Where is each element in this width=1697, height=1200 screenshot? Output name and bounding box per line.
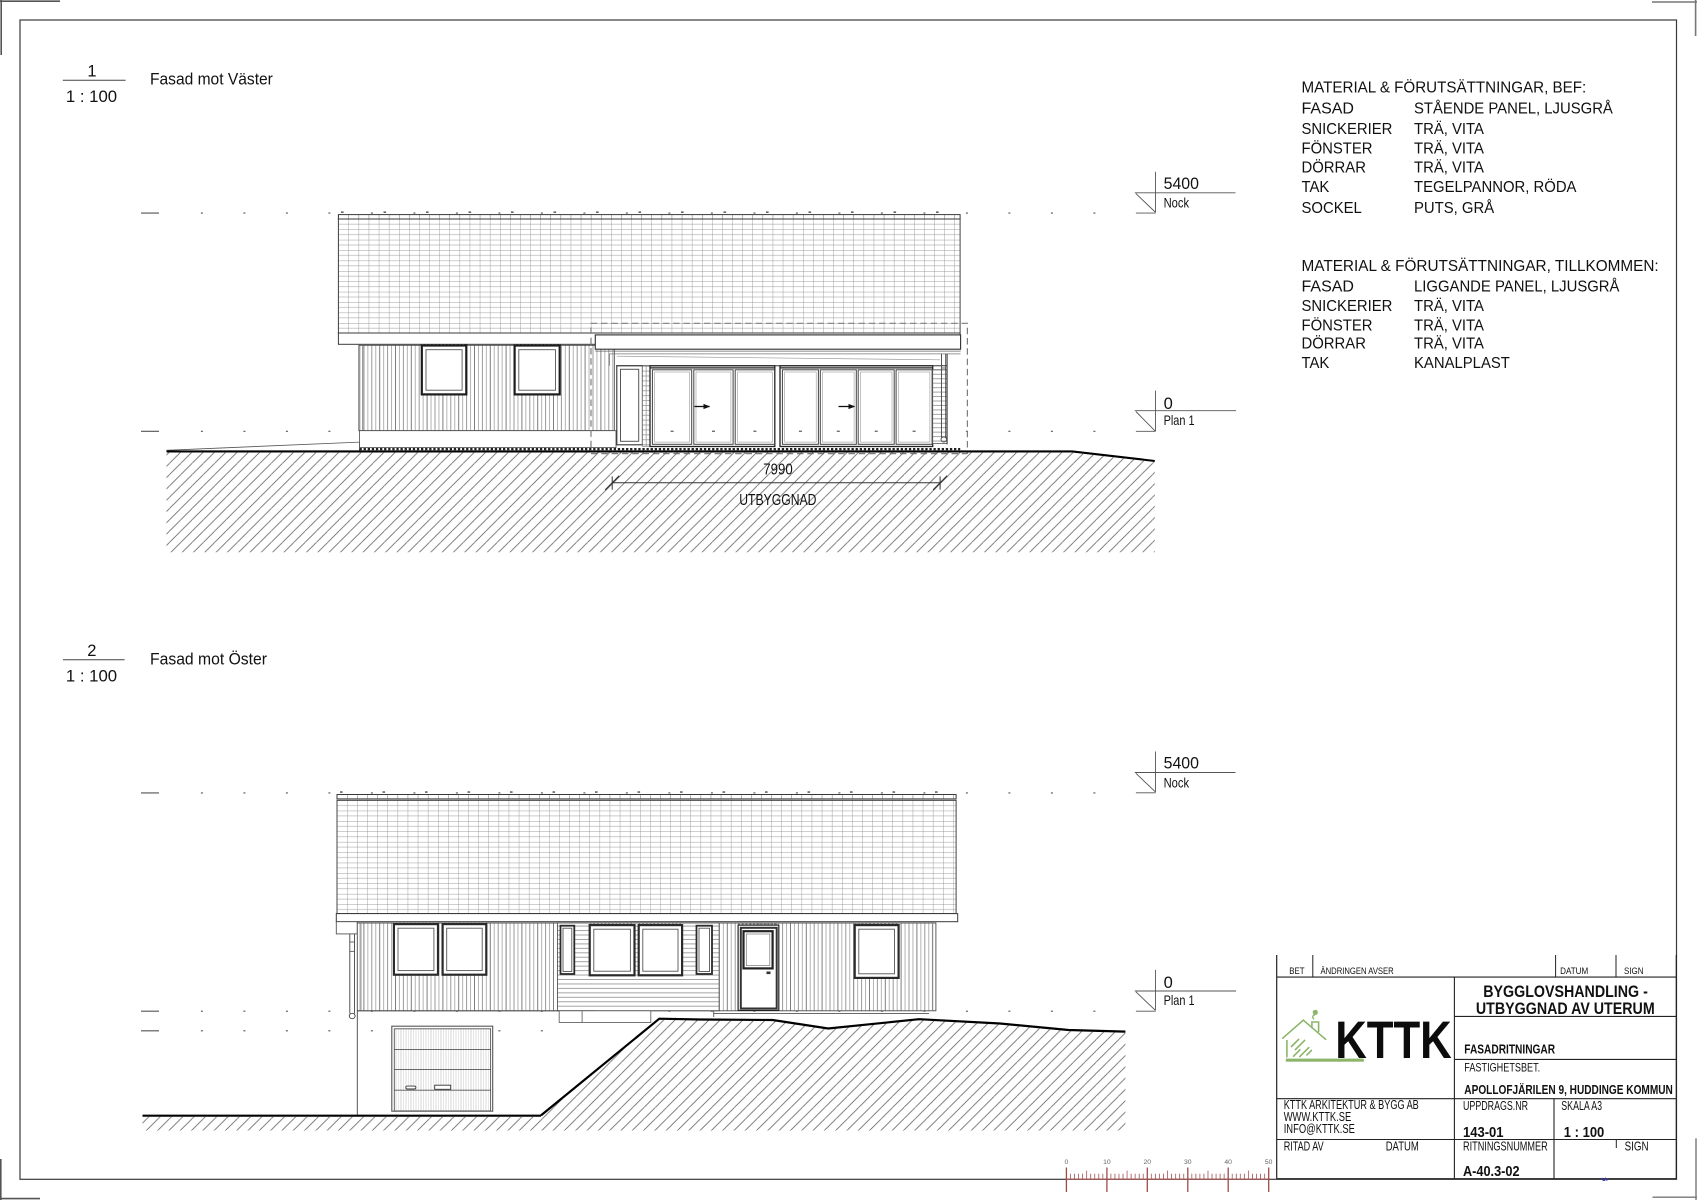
svg-text:Plan 1: Plan 1 <box>1164 413 1195 429</box>
svg-text:TRÄ, VITA: TRÄ, VITA <box>1414 159 1485 177</box>
svg-text:Fasad mot Öster: Fasad mot Öster <box>150 650 268 668</box>
svg-text:40: 40 <box>1224 1159 1232 1166</box>
svg-text:TRÄ, VITA: TRÄ, VITA <box>1414 140 1485 158</box>
svg-text:A-40.3-02: A-40.3-02 <box>1463 1163 1520 1179</box>
svg-text:BYGGLOVSHANDLING -: BYGGLOVSHANDLING - <box>1483 983 1648 1001</box>
svg-text:APOLLOFJÄRILEN 9, HUDDINGE KOM: APOLLOFJÄRILEN 9, HUDDINGE KOMMUN <box>1464 1083 1673 1098</box>
svg-text:Plan 1: Plan 1 <box>1164 993 1195 1009</box>
svg-text:1: 1 <box>87 63 96 81</box>
svg-text:PUTS, GRÅ: PUTS, GRÅ <box>1414 199 1495 217</box>
svg-text:50: 50 <box>1265 1159 1273 1166</box>
svg-text:2: 2 <box>87 642 96 660</box>
svg-text:1 : 100: 1 : 100 <box>66 666 117 685</box>
svg-text:FÖNSTER: FÖNSTER <box>1302 139 1373 158</box>
svg-text:TEGELPANNOR, RÖDA: TEGELPANNOR, RÖDA <box>1414 178 1577 197</box>
svg-text:TAK: TAK <box>1302 179 1330 197</box>
svg-text:UTBYGGNAD AV UTERUM: UTBYGGNAD AV UTERUM <box>1476 1000 1655 1018</box>
svg-text:1 : 100: 1 : 100 <box>66 87 117 106</box>
svg-text:Nock: Nock <box>1164 196 1190 211</box>
svg-text:LIGGANDE PANEL, LJUSGRÅ: LIGGANDE PANEL, LJUSGRÅ <box>1414 278 1620 296</box>
svg-text:DATUM: DATUM <box>1560 966 1588 977</box>
svg-text:TRÄ, VITA: TRÄ, VITA <box>1414 120 1485 138</box>
svg-text:DÖRRAR: DÖRRAR <box>1302 334 1366 353</box>
svg-text:7990: 7990 <box>763 462 792 479</box>
svg-text:30: 30 <box>1184 1159 1192 1166</box>
svg-text:TRÄ, VITA: TRÄ, VITA <box>1414 335 1485 353</box>
svg-text:MATERIAL & FÖRUTSÄTTNINGAR, TI: MATERIAL & FÖRUTSÄTTNINGAR, TILLKOMMEN: <box>1302 257 1659 275</box>
svg-text:DATUM: DATUM <box>1386 1140 1419 1154</box>
svg-text:TRÄ, VITA: TRÄ, VITA <box>1414 317 1485 335</box>
svg-text:TAK: TAK <box>1302 354 1330 372</box>
svg-text:SNICKERIER: SNICKERIER <box>1302 297 1393 315</box>
svg-text:STÅENDE PANEL, LJUSGRÅ: STÅENDE PANEL, LJUSGRÅ <box>1414 100 1614 118</box>
svg-text:RITAD AV: RITAD AV <box>1284 1140 1325 1154</box>
svg-text:20: 20 <box>1144 1159 1152 1166</box>
svg-text:MATERIAL & FÖRUTSÄTTNINGAR, BE: MATERIAL & FÖRUTSÄTTNINGAR, BEF: <box>1302 78 1587 96</box>
svg-text:0: 0 <box>1164 395 1173 413</box>
svg-text:FASTIGHETSBET.: FASTIGHETSBET. <box>1464 1062 1540 1076</box>
svg-text:TRÄ, VITA: TRÄ, VITA <box>1414 297 1485 315</box>
svg-text:0: 0 <box>1164 974 1173 992</box>
svg-text:BET: BET <box>1289 965 1305 976</box>
svg-text:5400: 5400 <box>1164 175 1199 193</box>
svg-text:KANALPLAST: KANALPLAST <box>1414 354 1510 372</box>
svg-text:FASADRITNINGAR: FASADRITNINGAR <box>1464 1043 1555 1056</box>
svg-text:INFO@KTTK.SE: INFO@KTTK.SE <box>1284 1123 1355 1137</box>
svg-text:143-01: 143-01 <box>1463 1124 1504 1140</box>
svg-text:UTBYGGNAD: UTBYGGNAD <box>739 491 816 509</box>
svg-text:SIGN: SIGN <box>1624 966 1644 977</box>
svg-text:RITNINGSNUMMER: RITNINGSNUMMER <box>1463 1140 1548 1154</box>
svg-text:10: 10 <box>1103 1159 1111 1166</box>
svg-text:SOCKEL: SOCKEL <box>1302 199 1363 217</box>
svg-text:UPPDRAGS.NR: UPPDRAGS.NR <box>1463 1099 1528 1113</box>
svg-text:SNICKERIER: SNICKERIER <box>1302 120 1393 138</box>
svg-text:0: 0 <box>1065 1159 1069 1166</box>
svg-text:Fasad mot Väster: Fasad mot Väster <box>150 70 274 89</box>
svg-text:1 : 100: 1 : 100 <box>1564 1124 1605 1140</box>
svg-text:SIGN: SIGN <box>1625 1140 1649 1153</box>
svg-text:FASAD: FASAD <box>1302 279 1354 296</box>
svg-text:SKALA A3: SKALA A3 <box>1561 1099 1602 1113</box>
svg-text:Nock: Nock <box>1164 775 1190 790</box>
svg-text:DÖRRAR: DÖRRAR <box>1302 158 1366 177</box>
svg-text:5400: 5400 <box>1164 754 1199 772</box>
svg-text:ÄNDRINGEN AVSER: ÄNDRINGEN AVSER <box>1321 965 1394 976</box>
svg-text:FÖNSTER: FÖNSTER <box>1302 316 1373 335</box>
svg-text:KTTK: KTTK <box>1335 1011 1452 1070</box>
svg-text:FASAD: FASAD <box>1302 100 1354 117</box>
